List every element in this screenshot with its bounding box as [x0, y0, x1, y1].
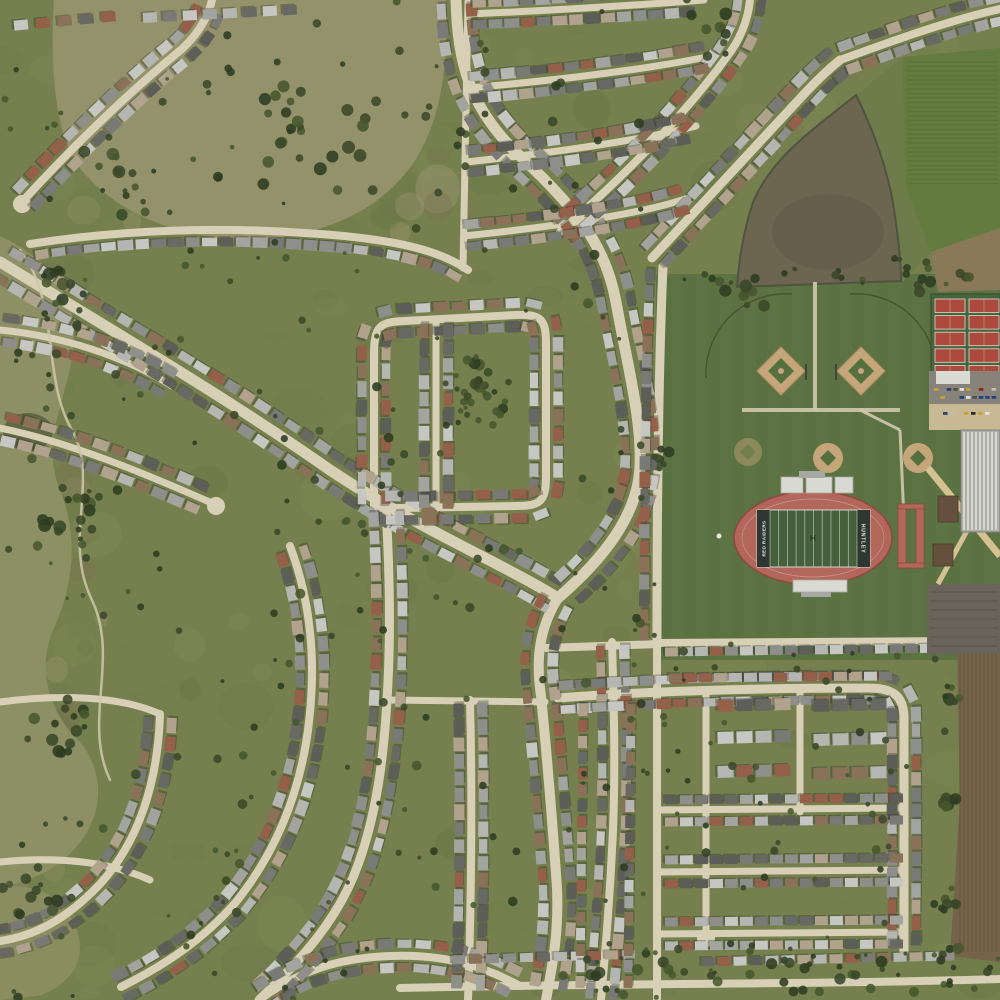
- tree: [638, 206, 643, 211]
- parked-car: [947, 388, 952, 391]
- tree: [856, 728, 864, 736]
- house: [535, 850, 546, 864]
- house: [890, 915, 903, 924]
- tree: [854, 954, 860, 960]
- house: [443, 477, 454, 492]
- house: [357, 455, 368, 468]
- house: [598, 763, 606, 779]
- house: [912, 900, 921, 914]
- tree: [591, 971, 602, 982]
- house: [680, 855, 693, 864]
- tree: [987, 965, 993, 971]
- house: [252, 237, 267, 248]
- house: [626, 752, 635, 764]
- house: [546, 135, 560, 147]
- house: [473, 20, 488, 30]
- tree: [183, 943, 189, 949]
- house: [591, 678, 607, 688]
- house: [710, 879, 723, 888]
- house: [531, 233, 547, 245]
- tree: [719, 7, 732, 20]
- house: [79, 13, 94, 24]
- tree: [822, 677, 830, 685]
- house: [553, 463, 563, 478]
- house: [755, 731, 771, 743]
- tree: [952, 943, 963, 954]
- house: [507, 321, 521, 333]
- house: [477, 925, 486, 938]
- house: [503, 0, 519, 7]
- tree: [71, 725, 83, 737]
- tree: [239, 751, 248, 760]
- parked-car: [992, 388, 997, 391]
- house: [289, 724, 302, 740]
- parked-car: [940, 396, 945, 399]
- tree: [234, 849, 238, 853]
- tree: [453, 600, 458, 605]
- tree: [278, 683, 285, 690]
- tree: [122, 397, 126, 401]
- tree: [799, 963, 809, 973]
- tree: [876, 956, 888, 968]
- tree: [826, 936, 830, 940]
- tree: [834, 973, 845, 984]
- bleachers-north: [806, 477, 832, 493]
- tree: [61, 704, 69, 712]
- parked-car: [953, 388, 958, 391]
- house: [624, 944, 633, 956]
- house: [695, 879, 708, 888]
- tree: [174, 753, 182, 761]
- house: [576, 960, 585, 972]
- tree: [432, 883, 440, 891]
- house: [851, 699, 867, 711]
- tree: [113, 165, 126, 178]
- house: [455, 788, 464, 803]
- terrain-mottle: [515, 49, 533, 67]
- house: [397, 583, 408, 598]
- tree: [76, 820, 83, 827]
- tree: [651, 454, 657, 460]
- tree: [620, 863, 628, 871]
- tree: [315, 518, 321, 524]
- tree: [454, 142, 462, 150]
- tree: [379, 698, 388, 707]
- tree: [224, 851, 230, 857]
- tree: [784, 958, 794, 968]
- house: [532, 795, 541, 812]
- tree: [328, 633, 335, 640]
- house: [396, 529, 405, 543]
- house: [370, 655, 381, 671]
- house: [371, 565, 381, 581]
- tree: [95, 493, 103, 501]
- house: [614, 917, 625, 932]
- house: [624, 912, 633, 924]
- tree: [24, 736, 31, 743]
- house: [135, 239, 149, 250]
- house: [887, 755, 897, 770]
- tree: [891, 255, 898, 262]
- tree: [851, 970, 860, 979]
- house: [397, 656, 406, 670]
- house: [615, 403, 628, 419]
- house: [800, 878, 813, 887]
- house: [535, 86, 550, 97]
- tree: [617, 337, 621, 341]
- runway-bar: [898, 504, 924, 509]
- tree: [455, 420, 460, 425]
- tree: [831, 271, 839, 279]
- house: [520, 671, 530, 686]
- tree: [470, 902, 476, 908]
- house: [489, 19, 504, 29]
- house: [576, 880, 585, 892]
- house: [454, 754, 464, 769]
- house: [318, 654, 329, 670]
- house: [642, 336, 652, 352]
- tree: [15, 909, 25, 919]
- house: [419, 477, 430, 491]
- house: [472, 0, 486, 8]
- house: [596, 646, 605, 660]
- tree: [227, 278, 233, 284]
- house: [656, 699, 671, 710]
- house: [911, 932, 922, 945]
- tree: [492, 389, 498, 395]
- house: [665, 855, 678, 864]
- tree: [355, 572, 360, 577]
- house: [639, 507, 650, 521]
- tree: [758, 801, 763, 806]
- tree: [42, 278, 52, 288]
- house: [556, 758, 567, 774]
- house: [552, 15, 568, 25]
- tree: [113, 485, 123, 495]
- house: [774, 672, 787, 681]
- house: [453, 704, 463, 718]
- tree: [292, 719, 299, 726]
- tree: [728, 641, 734, 647]
- tree: [80, 709, 90, 719]
- tree: [275, 138, 286, 149]
- tree: [463, 355, 472, 364]
- tree: [387, 458, 395, 466]
- house: [829, 954, 842, 963]
- house: [526, 742, 538, 758]
- tree: [727, 940, 734, 947]
- tree: [627, 716, 634, 723]
- house: [455, 822, 463, 836]
- house: [443, 459, 454, 475]
- tree: [230, 411, 238, 419]
- house: [625, 816, 634, 828]
- tree: [606, 941, 612, 947]
- tree: [944, 282, 949, 287]
- house: [597, 798, 607, 812]
- tree: [151, 169, 156, 174]
- house: [487, 91, 501, 103]
- house: [861, 953, 874, 962]
- tree: [965, 272, 974, 281]
- tree: [46, 383, 54, 391]
- house: [317, 636, 328, 652]
- tree: [869, 811, 876, 818]
- tree: [787, 808, 793, 814]
- house: [725, 795, 738, 804]
- tree: [190, 156, 196, 162]
- house: [117, 239, 133, 251]
- tree: [107, 148, 119, 160]
- house: [476, 514, 490, 523]
- house: [770, 794, 783, 803]
- tree: [213, 847, 219, 853]
- tree: [701, 271, 708, 278]
- tree: [63, 816, 68, 821]
- house: [493, 489, 508, 499]
- house: [553, 428, 563, 441]
- house: [845, 794, 858, 803]
- tree: [21, 873, 32, 884]
- house: [626, 736, 635, 748]
- tree: [941, 728, 949, 736]
- house: [576, 928, 585, 940]
- house: [611, 55, 627, 67]
- street: [658, 870, 902, 872]
- house: [451, 975, 462, 989]
- house: [699, 673, 712, 682]
- tree: [701, 24, 711, 34]
- house: [577, 800, 586, 812]
- house: [469, 954, 482, 963]
- house: [569, 14, 583, 25]
- tree: [157, 566, 163, 572]
- tree: [223, 31, 231, 39]
- house: [890, 644, 903, 653]
- tree: [99, 824, 108, 833]
- tree: [581, 781, 585, 785]
- house: [607, 677, 623, 688]
- tree: [281, 107, 291, 117]
- tree: [888, 768, 894, 774]
- house: [537, 16, 552, 26]
- tree: [505, 379, 512, 386]
- house: [530, 426, 538, 442]
- house: [800, 940, 813, 949]
- tree: [176, 627, 183, 634]
- tree: [412, 761, 422, 771]
- tree: [703, 822, 709, 828]
- tree: [945, 684, 951, 690]
- house: [578, 720, 587, 732]
- tree: [368, 185, 378, 195]
- house: [616, 901, 626, 915]
- tree: [682, 277, 686, 281]
- house: [577, 832, 586, 844]
- house: [578, 736, 587, 748]
- tree: [775, 840, 780, 845]
- tree: [131, 769, 141, 779]
- house: [612, 934, 624, 950]
- tree: [850, 651, 855, 656]
- tree: [558, 971, 567, 980]
- tree: [378, 482, 386, 490]
- house: [35, 17, 50, 28]
- house: [397, 565, 407, 580]
- tree: [936, 956, 945, 965]
- house: [554, 373, 562, 387]
- tree: [594, 136, 602, 144]
- house: [594, 865, 604, 880]
- house: [665, 917, 678, 926]
- tree: [238, 799, 248, 809]
- tree: [221, 679, 225, 683]
- house: [561, 813, 572, 827]
- tree: [372, 382, 381, 391]
- tree: [355, 269, 360, 274]
- house: [479, 839, 487, 853]
- terrain-mottle: [390, 577, 432, 604]
- tree: [747, 774, 756, 783]
- house: [623, 677, 639, 687]
- tree: [44, 316, 50, 322]
- tree: [375, 758, 382, 765]
- tree: [82, 724, 88, 730]
- house: [392, 729, 404, 743]
- house: [368, 707, 378, 723]
- tree: [781, 270, 787, 276]
- house: [830, 645, 843, 654]
- house: [695, 795, 708, 804]
- house: [183, 10, 198, 21]
- tree: [306, 328, 311, 333]
- terrain-mottle: [76, 661, 91, 669]
- house: [164, 736, 176, 752]
- tree: [594, 988, 599, 993]
- house: [538, 903, 549, 917]
- tree: [49, 561, 53, 565]
- house: [452, 302, 466, 311]
- tree: [315, 427, 323, 435]
- press-box: [799, 471, 825, 478]
- house: [366, 726, 377, 741]
- tree: [435, 336, 439, 340]
- tree: [262, 156, 274, 168]
- tree: [461, 162, 469, 170]
- house: [520, 652, 529, 665]
- house: [581, 152, 595, 164]
- house: [785, 854, 798, 863]
- tree: [581, 678, 591, 688]
- tree: [65, 596, 69, 600]
- house: [443, 494, 454, 509]
- tree: [250, 724, 257, 731]
- house: [800, 794, 813, 803]
- terrain-mottle: [496, 352, 526, 376]
- house: [645, 269, 655, 283]
- tree: [402, 807, 407, 812]
- house: [879, 672, 892, 681]
- house: [564, 154, 580, 167]
- house: [419, 375, 429, 389]
- house: [419, 495, 429, 508]
- house: [755, 855, 768, 864]
- house: [487, 299, 503, 309]
- terrain-mottle: [67, 196, 100, 225]
- house: [642, 354, 652, 368]
- tree: [761, 874, 769, 882]
- tree: [232, 908, 241, 917]
- house: [626, 704, 635, 716]
- house: [639, 557, 650, 573]
- tree: [589, 250, 599, 260]
- terrain-mottle: [315, 297, 350, 318]
- tree: [65, 496, 72, 503]
- house: [845, 916, 858, 925]
- house: [454, 772, 463, 785]
- house: [624, 960, 633, 972]
- house: [358, 490, 366, 504]
- house: [525, 724, 536, 740]
- house: [578, 704, 587, 716]
- house: [515, 235, 531, 246]
- tree: [644, 947, 648, 951]
- house: [774, 764, 790, 776]
- house: [860, 878, 873, 887]
- house: [725, 817, 738, 826]
- house: [166, 718, 177, 734]
- house: [785, 646, 798, 655]
- house: [717, 700, 733, 712]
- tree: [437, 450, 444, 457]
- tree: [83, 278, 87, 282]
- house: [576, 944, 585, 956]
- house: [454, 856, 465, 871]
- house: [553, 391, 562, 405]
- house: [530, 391, 539, 406]
- house: [478, 856, 488, 870]
- house: [243, 7, 258, 18]
- house: [453, 326, 468, 335]
- house: [845, 878, 858, 887]
- house: [725, 917, 738, 926]
- terrain-mottle: [334, 603, 365, 629]
- tree: [182, 262, 190, 270]
- house: [2, 338, 16, 349]
- house: [57, 15, 72, 26]
- terrain-mottle: [179, 678, 200, 701]
- tree: [709, 968, 713, 972]
- house: [475, 490, 490, 499]
- house: [142, 717, 152, 731]
- parked-car: [950, 412, 955, 415]
- house: [642, 404, 650, 419]
- tree: [811, 954, 816, 959]
- house: [830, 794, 843, 803]
- house: [834, 672, 847, 681]
- house: [529, 463, 538, 477]
- tree: [192, 440, 197, 445]
- house: [597, 748, 608, 761]
- tree: [708, 275, 715, 282]
- tree: [454, 386, 459, 391]
- house: [785, 794, 798, 803]
- tree: [5, 546, 12, 553]
- tree: [571, 282, 579, 290]
- tree: [728, 762, 736, 770]
- house: [517, 161, 532, 171]
- house: [601, 13, 616, 23]
